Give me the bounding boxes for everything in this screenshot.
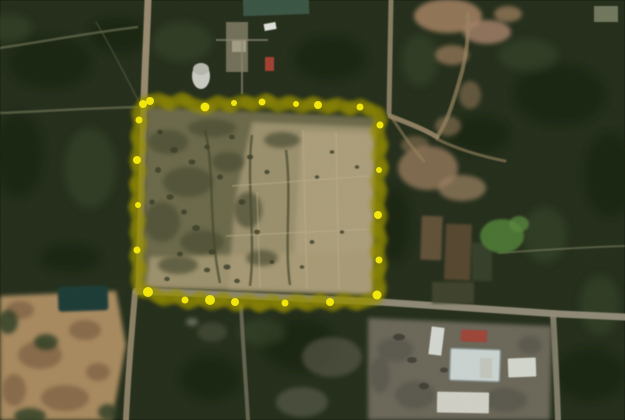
image-grain-overlay bbox=[0, 0, 625, 420]
satellite-image bbox=[0, 0, 625, 420]
satellite-canvas bbox=[0, 0, 625, 420]
